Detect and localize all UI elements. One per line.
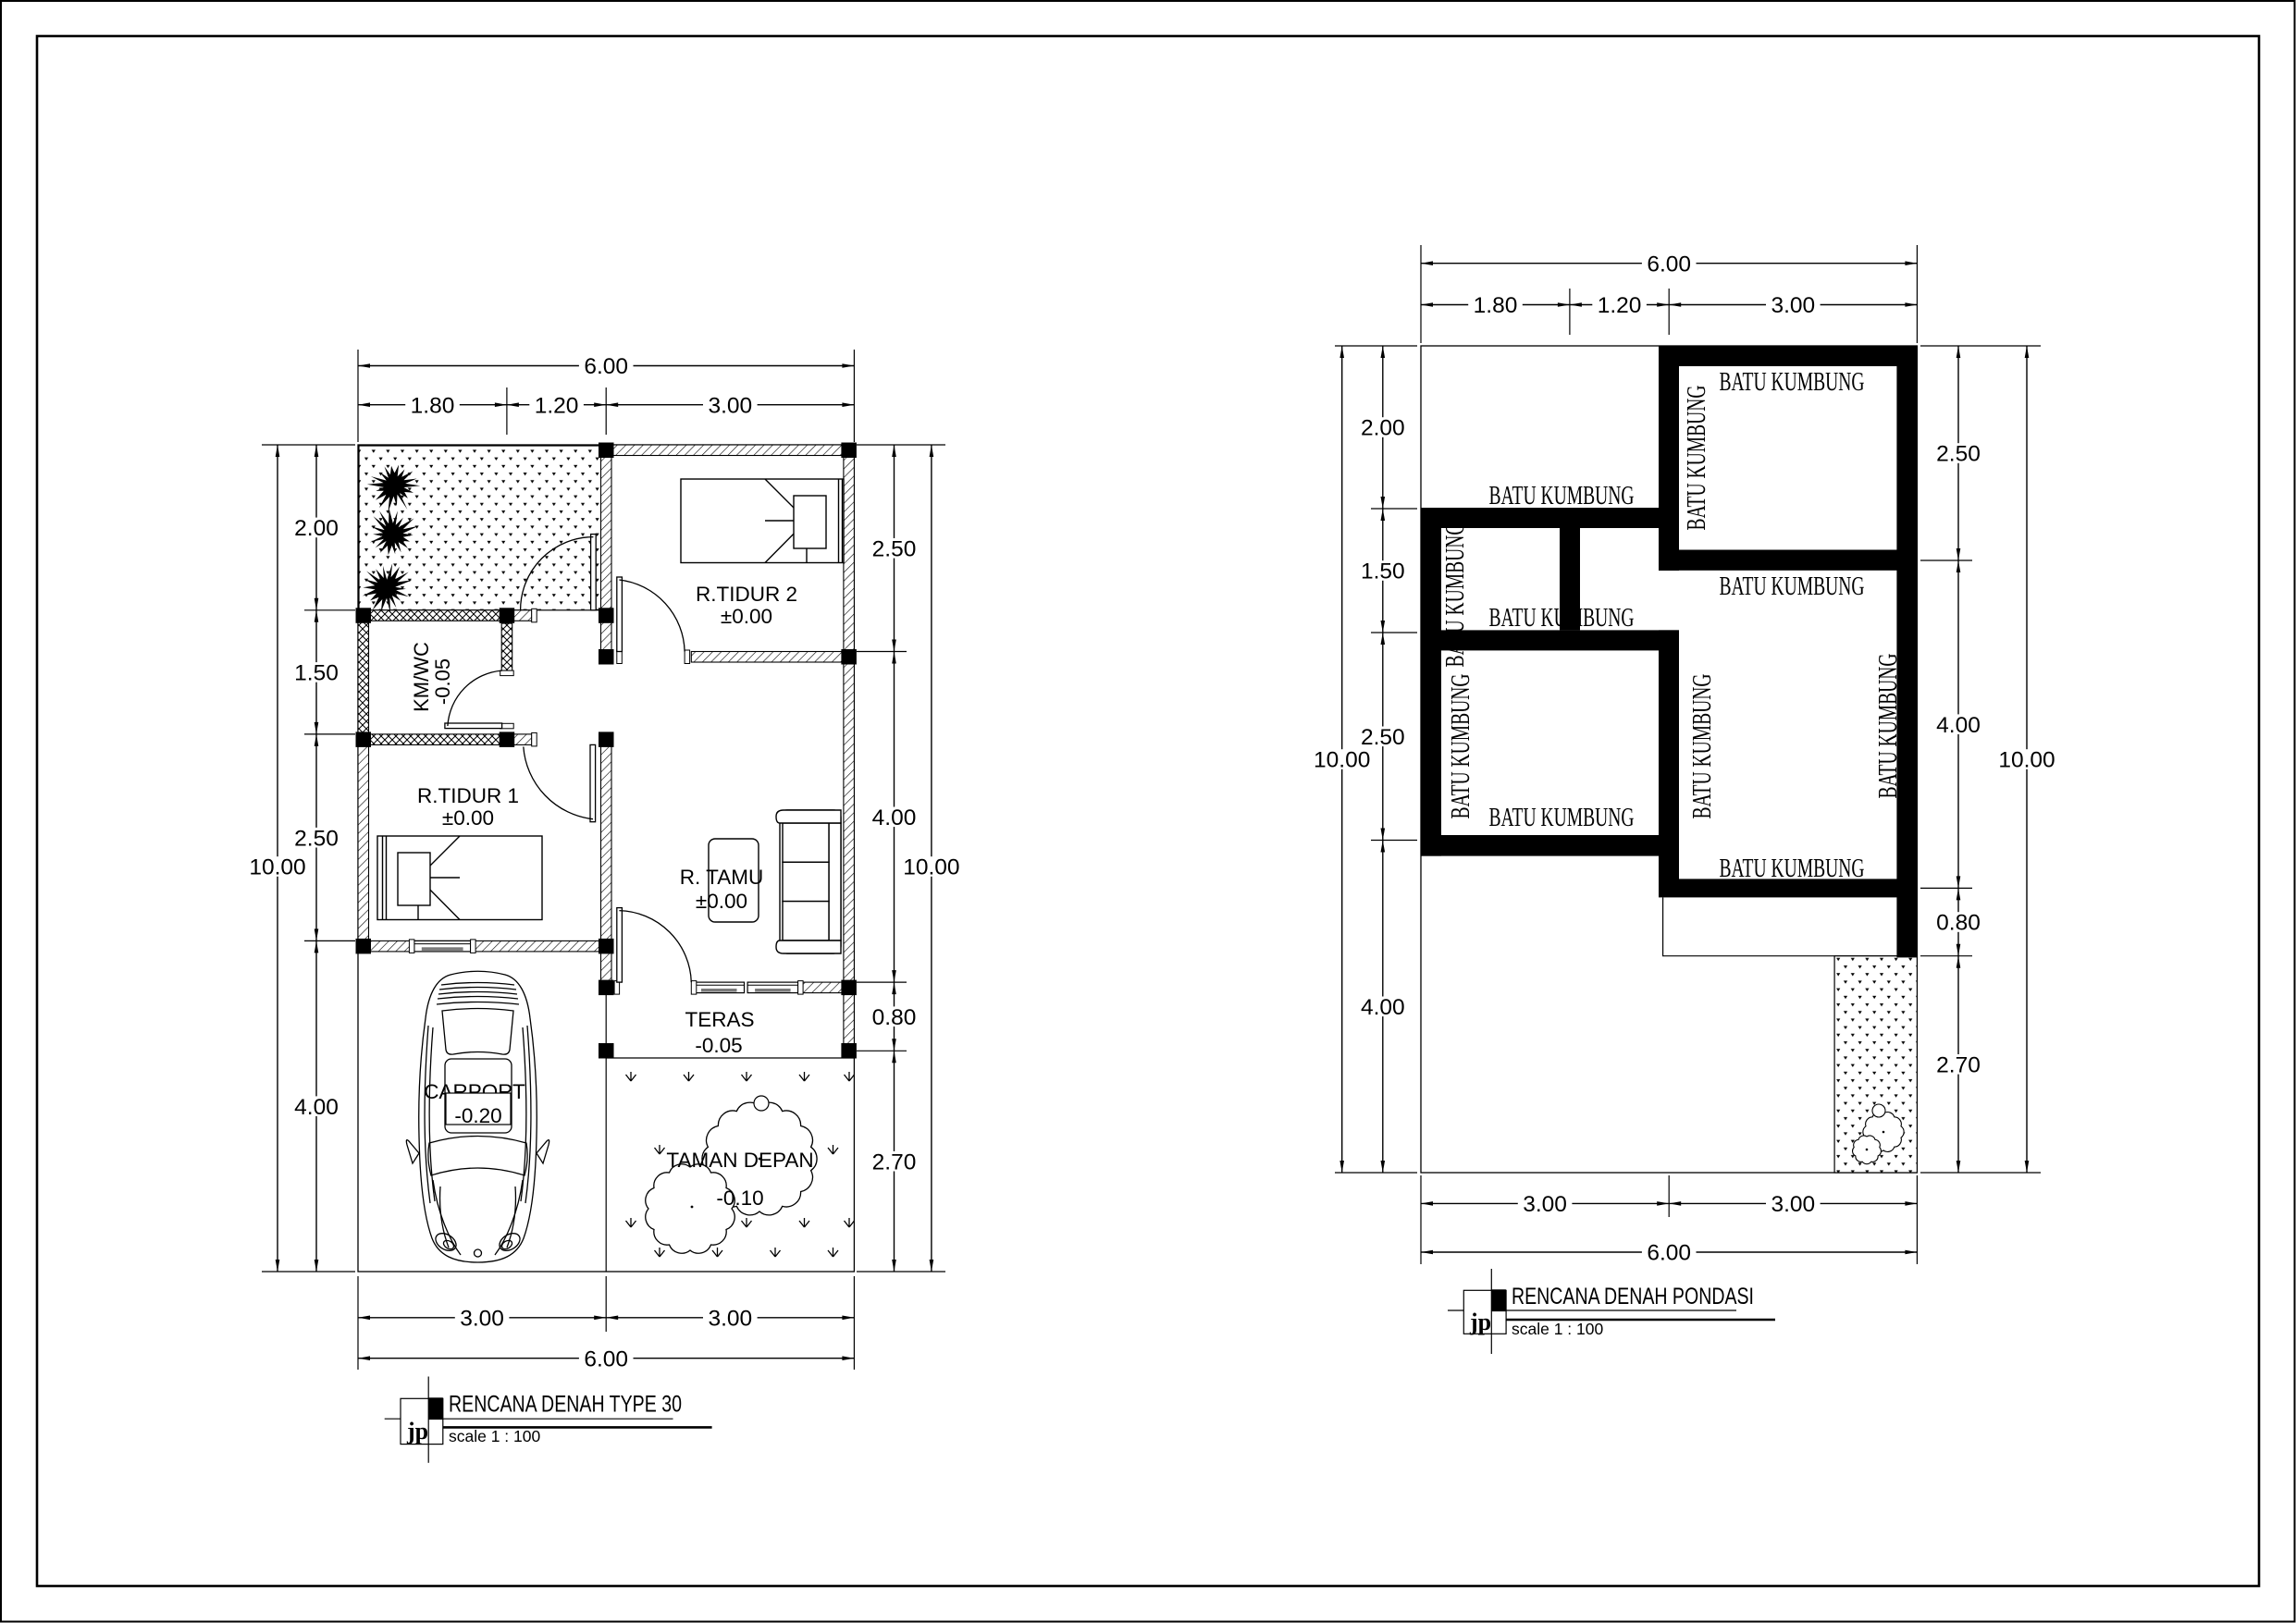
svg-text:BATU KUMBUNG: BATU KUMBUNG (1489, 482, 1635, 510)
svg-text:1.80: 1.80 (411, 393, 455, 418)
svg-text:BATU KUMBUNG: BATU KUMBUNG (1683, 386, 1711, 531)
svg-text:2.50: 2.50 (1361, 725, 1405, 750)
svg-text:3.00: 3.00 (460, 1307, 504, 1332)
svg-text:10.00: 10.00 (1314, 748, 1370, 773)
svg-text:2.50: 2.50 (1936, 442, 1981, 467)
svg-text:1.80: 1.80 (1474, 293, 1518, 318)
svg-text:1.50: 1.50 (1361, 559, 1405, 584)
svg-text:4.00: 4.00 (872, 805, 917, 830)
svg-text:2.70: 2.70 (872, 1150, 917, 1174)
svg-text:4.00: 4.00 (1936, 713, 1981, 738)
svg-text:jp: jp (1469, 1309, 1491, 1335)
svg-text:BATU KUMBUNG: BATU KUMBUNG (1720, 855, 1865, 883)
svg-text:10.00: 10.00 (903, 855, 959, 880)
svg-text:-0.05: -0.05 (431, 658, 454, 705)
svg-text:BATU KUMBUNG: BATU KUMBUNG (1441, 523, 1470, 668)
svg-text:jp: jp (406, 1418, 428, 1445)
svg-text:10.00: 10.00 (1998, 748, 2055, 773)
svg-text:3.00: 3.00 (1771, 1192, 1815, 1217)
svg-text:R. TAMU: R. TAMU (680, 866, 763, 889)
svg-text:6.00: 6.00 (1647, 252, 1691, 277)
svg-text:RENCANA DENAH PONDASI: RENCANA DENAH PONDASI (1512, 1284, 1754, 1309)
svg-text:-0.05: -0.05 (695, 1034, 742, 1057)
svg-text:TERAS: TERAS (685, 1008, 754, 1031)
svg-text:3.00: 3.00 (708, 1307, 752, 1332)
svg-text:4.00: 4.00 (1361, 995, 1405, 1020)
svg-text:BATU KUMBUNG: BATU KUMBUNG (1447, 674, 1475, 819)
svg-text:10.00: 10.00 (249, 855, 305, 880)
svg-text:R.TIDUR 1: R.TIDUR 1 (417, 784, 519, 807)
svg-text:3.00: 3.00 (1523, 1192, 1567, 1217)
svg-text:±0.00: ±0.00 (696, 890, 747, 913)
svg-text:2.50: 2.50 (872, 536, 917, 561)
svg-text:-0.10: -0.10 (716, 1187, 763, 1210)
svg-text:2.00: 2.00 (1361, 416, 1405, 441)
svg-text:6.00: 6.00 (584, 354, 628, 379)
svg-text:BATU KUMBUNG: BATU KUMBUNG (1720, 572, 1865, 601)
svg-text:RENCANA DENAH TYPE 30: RENCANA DENAH TYPE 30 (449, 1392, 682, 1418)
svg-text:6.00: 6.00 (584, 1346, 628, 1371)
svg-text:1.20: 1.20 (1598, 293, 1642, 318)
svg-text:3.00: 3.00 (708, 393, 752, 418)
svg-text:-0.20: -0.20 (454, 1104, 501, 1127)
svg-text:6.00: 6.00 (1647, 1241, 1691, 1266)
svg-text:TAMAN DEPAN: TAMAN DEPAN (666, 1149, 813, 1172)
svg-text:3.00: 3.00 (1771, 293, 1815, 318)
svg-text:BATU KUMBUNG: BATU KUMBUNG (1720, 368, 1865, 397)
svg-text:0.80: 0.80 (1936, 911, 1981, 936)
svg-text:4.00: 4.00 (294, 1095, 339, 1120)
svg-text:BATU KUMBUNG: BATU KUMBUNG (1688, 674, 1717, 819)
svg-text:0.80: 0.80 (872, 1005, 917, 1030)
svg-text:BATU KUMBUNG: BATU KUMBUNG (1874, 654, 1903, 799)
svg-text:BATU KUMBUNG: BATU KUMBUNG (1489, 604, 1635, 633)
svg-text:1.20: 1.20 (535, 393, 579, 418)
svg-text:scale 1 : 100: scale 1 : 100 (1512, 1320, 1603, 1338)
svg-text:2.50: 2.50 (294, 826, 339, 851)
svg-text:KM/WC: KM/WC (410, 642, 433, 712)
svg-text:±0.00: ±0.00 (721, 605, 772, 628)
svg-text:±0.00: ±0.00 (442, 806, 494, 830)
svg-text:2.70: 2.70 (1936, 1053, 1981, 1078)
svg-text:BATU KUMBUNG: BATU KUMBUNG (1489, 804, 1635, 832)
svg-text:R.TIDUR 2: R.TIDUR 2 (696, 583, 797, 606)
svg-text:1.50: 1.50 (294, 661, 339, 686)
svg-text:scale 1 : 100: scale 1 : 100 (449, 1427, 540, 1445)
svg-text:2.00: 2.00 (294, 516, 339, 541)
